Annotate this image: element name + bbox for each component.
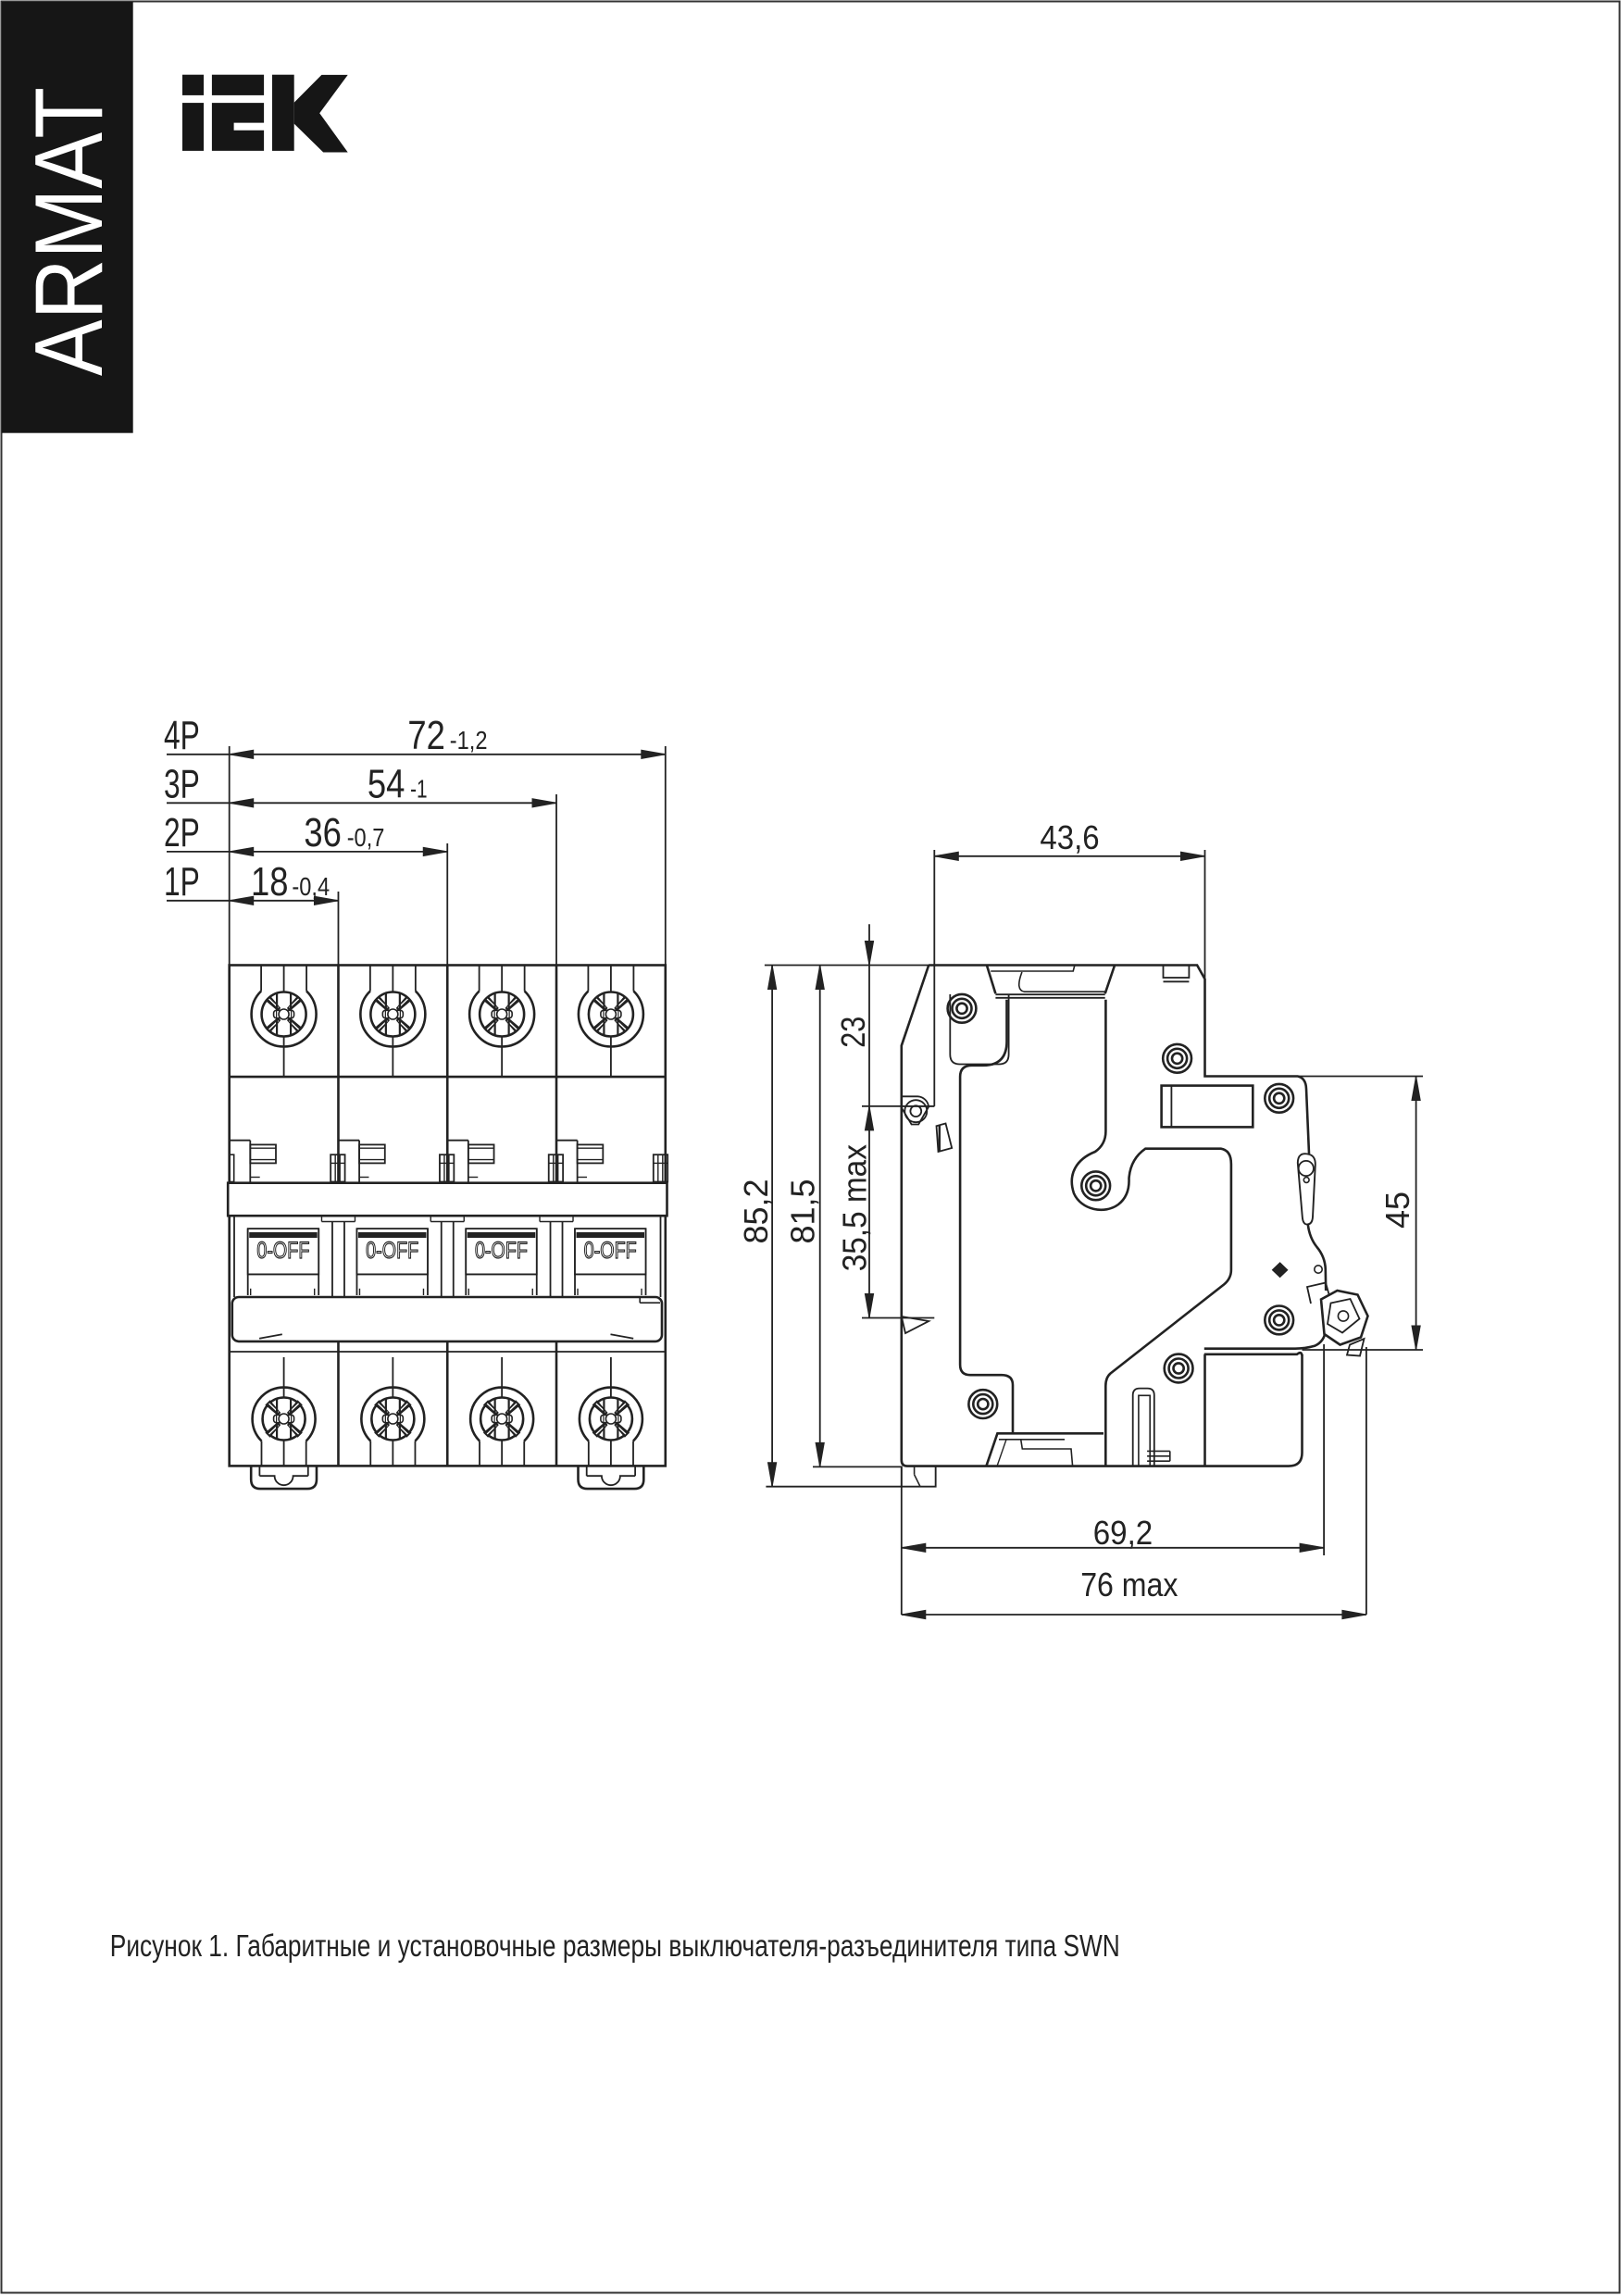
svg-text:43,6: 43,6: [1040, 818, 1099, 856]
svg-text:69,2: 69,2: [1093, 1514, 1153, 1552]
svg-text:18: 18: [251, 859, 289, 905]
svg-text:3P: 3P: [164, 761, 200, 806]
svg-text:2P: 2P: [164, 810, 200, 855]
svg-text:76 max: 76 max: [1080, 1566, 1178, 1603]
svg-text:1P: 1P: [164, 859, 200, 905]
svg-text:0-OFF: 0-OFF: [366, 1238, 418, 1264]
svg-text:Рисунок 1. Габаритные и устано: Рисунок 1. Габаритные и установочные раз…: [110, 1928, 1120, 1963]
svg-text:ARMAT: ARMAT: [16, 87, 123, 376]
svg-text:-1,2: -1,2: [450, 726, 488, 755]
svg-text:0-OFF: 0-OFF: [256, 1238, 309, 1264]
svg-text:85,2: 85,2: [737, 1179, 775, 1243]
svg-text:35,5 max: 35,5 max: [836, 1144, 874, 1271]
svg-text:45: 45: [1378, 1192, 1416, 1229]
svg-text:72: 72: [407, 713, 445, 758]
svg-text:-0,4: -0,4: [292, 872, 330, 901]
svg-text:36: 36: [304, 810, 342, 855]
svg-text:0-OFF: 0-OFF: [584, 1238, 637, 1264]
svg-text:-0,7: -0,7: [347, 823, 385, 852]
svg-text:23: 23: [834, 1017, 872, 1048]
svg-text:4P: 4P: [164, 713, 200, 758]
svg-text:-1: -1: [410, 774, 428, 803]
svg-text:0-OFF: 0-OFF: [475, 1238, 528, 1264]
svg-text:81,5: 81,5: [783, 1179, 821, 1243]
svg-text:54: 54: [368, 761, 405, 806]
